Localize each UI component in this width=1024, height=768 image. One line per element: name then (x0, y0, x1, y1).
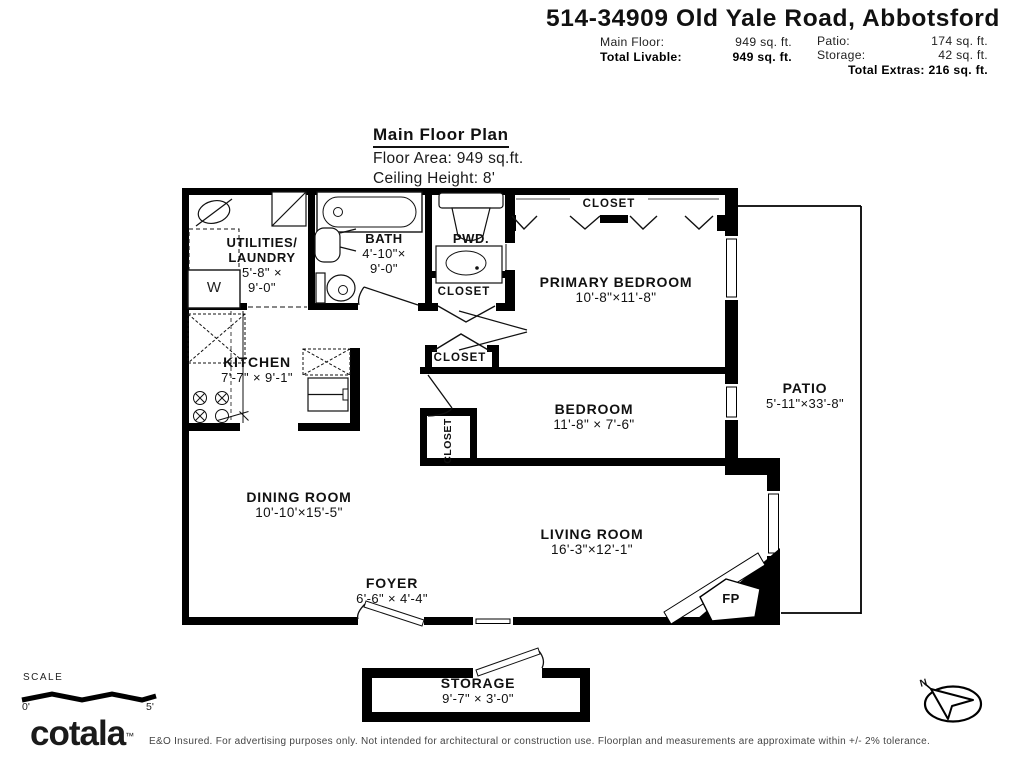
utility-sink-icon (196, 197, 233, 227)
room-label-bedroom-closet: CLOSET (442, 406, 456, 476)
kitchen-name: KITCHEN (221, 355, 293, 370)
bath-dim-1: 4'-10"× (362, 246, 406, 261)
closet-hall-lower-name: CLOSET (434, 351, 487, 366)
room-label-closet-hall-lower: CLOSET (434, 351, 487, 366)
bathtub-icon (317, 192, 422, 232)
room-label-foyer: FOYER 6'-6" × 4'-4" (356, 576, 428, 606)
toilet-icon (316, 273, 355, 303)
bedroom-name: BEDROOM (553, 402, 634, 417)
cotala-logo: cotala™ (30, 714, 134, 754)
room-label-living: LIVING ROOM 16'-3"×12'-1" (541, 527, 644, 557)
room-label-patio: PATIO 5'-11"×33'-8" (766, 381, 844, 411)
scale-start: 0' (22, 701, 30, 713)
room-label-closet-top: CLOSET (583, 197, 636, 212)
room-label-storage: STORAGE 9'-7" × 3'-0" (441, 676, 516, 706)
dining-name: DINING ROOM (246, 490, 351, 505)
foyer-dims: 6'-6" × 4'-4" (356, 591, 428, 606)
pwd-name: PWD. (453, 231, 489, 246)
patio-dims: 5'-11"×33'-8" (766, 396, 844, 411)
cabinet-icon (308, 378, 348, 411)
plan-graphics (0, 0, 1024, 768)
bath-name: BATH (362, 231, 406, 246)
living-name: LIVING ROOM (541, 527, 644, 542)
storage-name: STORAGE (441, 676, 516, 691)
disclaimer-text: E&O Insured. For advertising purposes on… (149, 736, 930, 747)
cotala-logo-text: cotala (30, 714, 125, 753)
room-label-bedroom: BEDROOM 11'-8" × 7'-6" (553, 402, 634, 432)
patio-name: PATIO (766, 381, 844, 396)
primary-bedroom-name: PRIMARY BEDROOM (540, 275, 693, 290)
floorplan-page: 514-34909 Old Yale Road, Abbotsford Main… (0, 0, 1024, 768)
bedroom-dims: 11'-8" × 7'-6" (553, 417, 634, 432)
fireplace-icon (664, 548, 780, 625)
fireplace-label: FP (722, 591, 740, 606)
living-dims: 16'-3"×12'-1" (541, 542, 644, 557)
door-swing (248, 244, 543, 676)
kitchen-dims: 7'-7" × 9'-1" (221, 370, 293, 385)
room-label-bath: BATH 4'-10"× 9'-0" (362, 231, 406, 276)
room-label-primary-bedroom: PRIMARY BEDROOM 10'-8"×11'-8" (540, 275, 693, 305)
foyer-name: FOYER (356, 576, 428, 591)
water-heater-icon (272, 192, 306, 226)
room-label-closet-hall-upper: CLOSET (438, 285, 491, 300)
primary-bedroom-dims: 10'-8"×11'-8" (540, 290, 693, 305)
washer-label: W (188, 279, 240, 296)
compass-icon (924, 683, 981, 722)
storage-dims: 9'-7" × 3'-0" (441, 691, 516, 706)
closet-hall-upper-name: CLOSET (438, 285, 491, 300)
stove-icon (194, 392, 249, 423)
scale-label: SCALE (23, 672, 63, 683)
room-label-dining: DINING ROOM 10'-10'×15'-5" (246, 490, 351, 520)
closet-top-name: CLOSET (583, 197, 636, 212)
dining-dims: 10'-10'×15'-5" (246, 505, 351, 520)
pwd-sink-icon (436, 246, 502, 283)
scale-end: 5' (146, 701, 154, 713)
bath-sink-icon (315, 228, 356, 262)
dishwasher-icon (303, 349, 350, 375)
utilities-name-2: LAUNDRY (227, 250, 298, 265)
scale-bar (22, 694, 156, 700)
utilities-dim-1: 5'-8" × (227, 265, 298, 280)
trademark-mark: ™ (125, 731, 134, 741)
room-label-pwd: PWD. (453, 231, 489, 246)
room-label-kitchen: KITCHEN 7'-7" × 9'-1" (221, 355, 293, 385)
utilities-name-1: UTILITIES/ (227, 235, 298, 250)
bath-dim-2: 9'-0" (362, 261, 406, 276)
